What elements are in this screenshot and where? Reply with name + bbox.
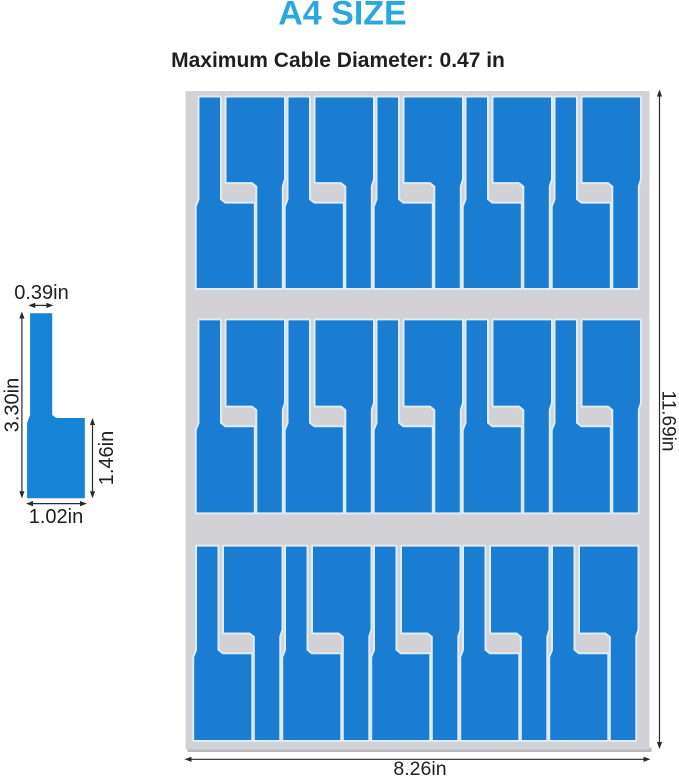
svg-text:1.46in: 1.46in xyxy=(96,431,118,486)
svg-text:8.26in: 8.26in xyxy=(393,758,446,777)
svg-text:A4 SIZE: A4 SIZE xyxy=(278,0,406,33)
svg-text:Maximum Cable Diameter: 0.47 i: Maximum Cable Diameter: 0.47 in xyxy=(171,49,505,72)
svg-text:1.02in: 1.02in xyxy=(29,506,84,528)
svg-text:0.39in: 0.39in xyxy=(14,282,69,304)
svg-text:3.30in: 3.30in xyxy=(2,378,24,433)
svg-text:11.69in: 11.69in xyxy=(658,391,679,452)
